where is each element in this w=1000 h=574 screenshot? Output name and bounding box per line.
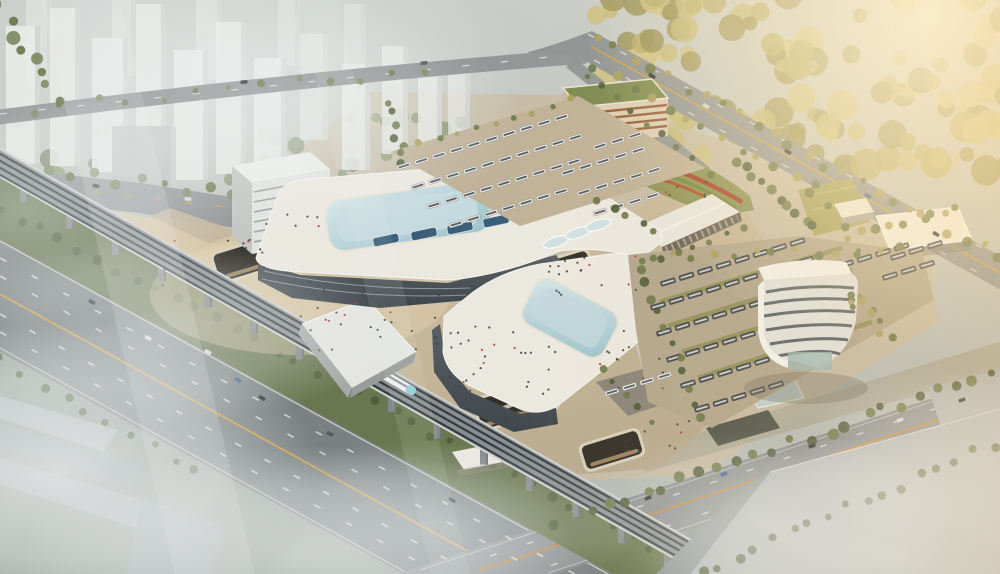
atmosphere-effects [0,0,1000,574]
rendering-svg [0,0,1000,574]
warm-light-overlay [0,0,1000,574]
aerial-rendering-canvas [0,0,1000,574]
